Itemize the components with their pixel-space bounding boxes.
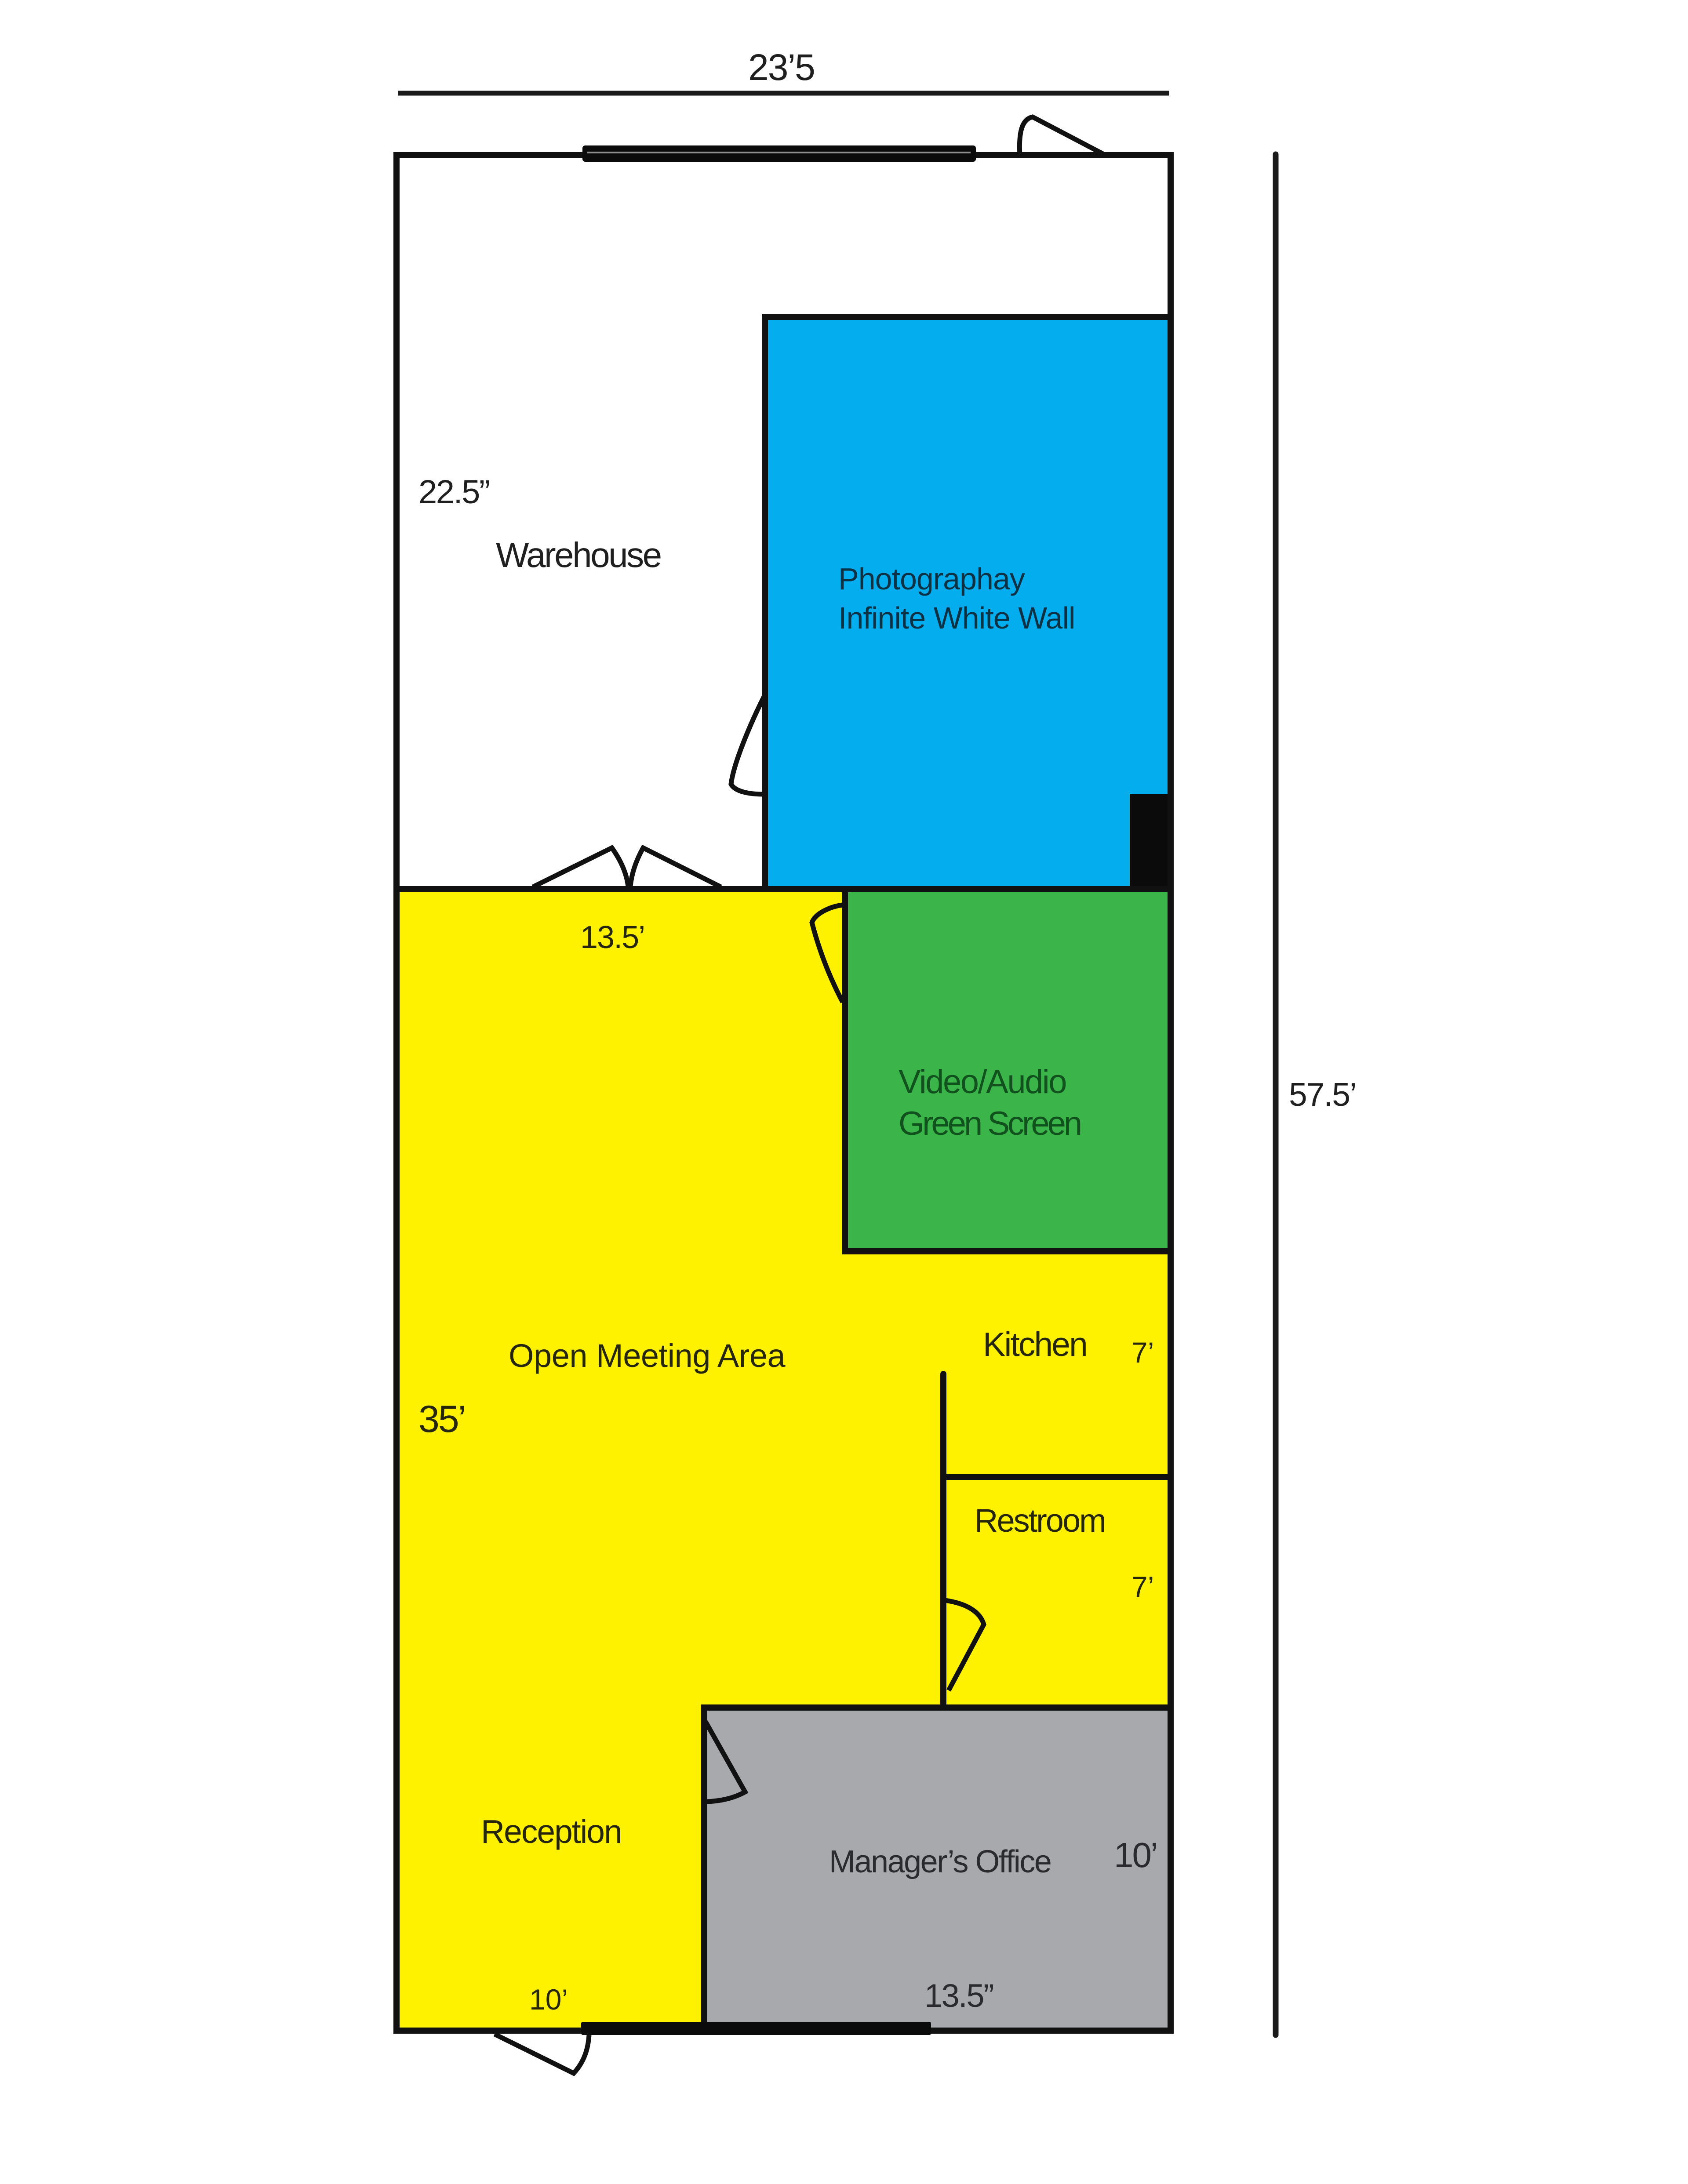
- svg-text:Infinite White Wall: Infinite White Wall: [838, 601, 1075, 635]
- svg-text:Reception: Reception: [481, 1813, 622, 1850]
- svg-text:10’: 10’: [1114, 1835, 1157, 1875]
- svg-text:7’: 7’: [1131, 1570, 1154, 1603]
- svg-text:Restroom: Restroom: [975, 1502, 1105, 1539]
- svg-text:13.5’: 13.5’: [580, 920, 644, 955]
- svg-text:22.5”: 22.5”: [418, 473, 489, 511]
- svg-text:23’5: 23’5: [748, 47, 815, 88]
- svg-text:Warehouse: Warehouse: [496, 535, 661, 574]
- svg-text:Manager’s Office: Manager’s Office: [829, 1844, 1051, 1879]
- svg-text:Green Screen: Green Screen: [899, 1105, 1080, 1142]
- svg-text:57.5’: 57.5’: [1289, 1076, 1356, 1113]
- svg-text:Kitchen: Kitchen: [983, 1326, 1087, 1363]
- svg-text:13.5”: 13.5”: [924, 1977, 993, 2014]
- svg-text:10’: 10’: [529, 1983, 568, 2016]
- svg-text:35’: 35’: [418, 1398, 465, 1440]
- svg-text:Photographay: Photographay: [838, 562, 1025, 596]
- svg-text:Open Meeting Area: Open Meeting Area: [509, 1337, 786, 1374]
- svg-text:Video/Audio: Video/Audio: [899, 1063, 1066, 1101]
- svg-text:7’: 7’: [1131, 1336, 1154, 1369]
